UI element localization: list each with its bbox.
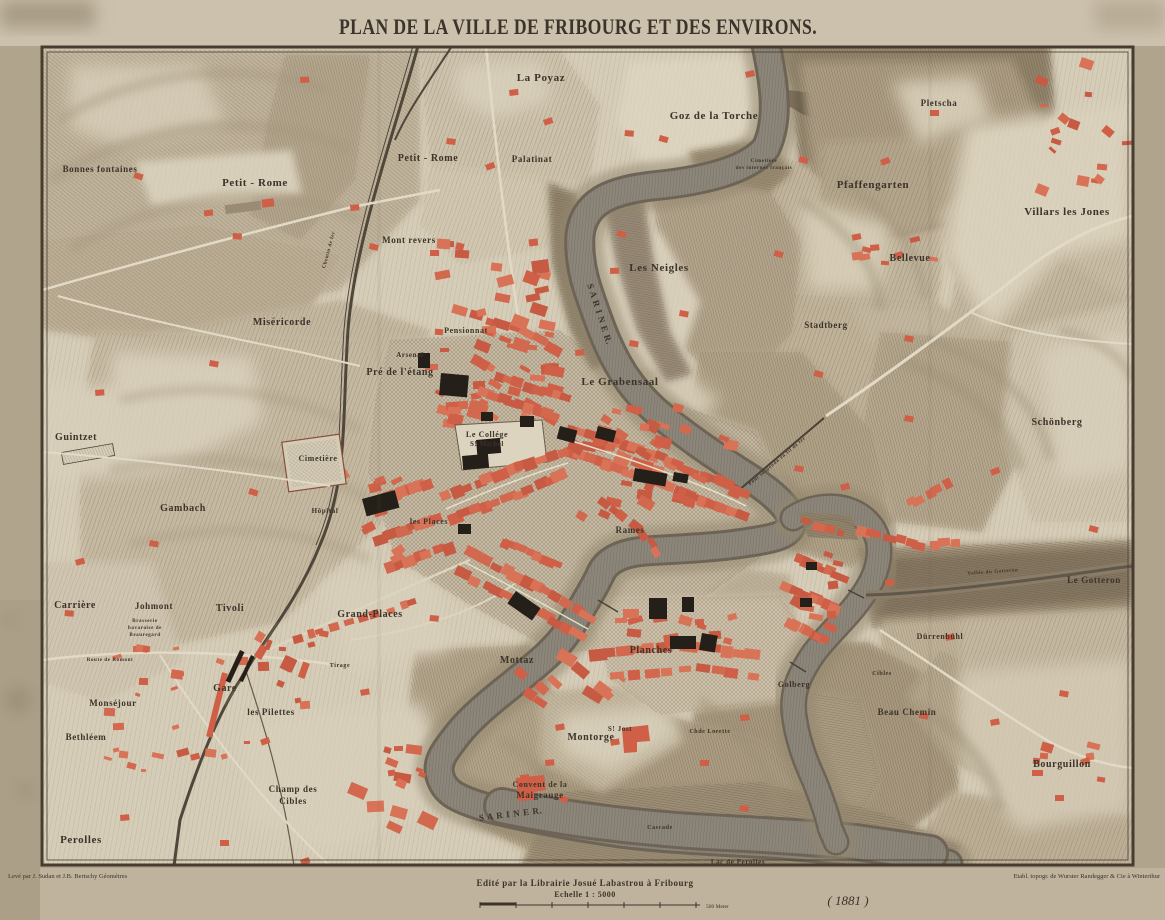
svg-text:Cibles: Cibles — [279, 796, 307, 806]
svg-text:Cascade: Cascade — [647, 825, 673, 831]
svg-text:Route de Romont: Route de Romont — [87, 658, 134, 663]
svg-text:Petit - Rome: Petit - Rome — [222, 177, 288, 189]
svg-text:Gambach: Gambach — [160, 503, 206, 514]
svg-text:Golberg: Golberg — [778, 680, 810, 689]
svg-text:Villars les Jones: Villars les Jones — [1024, 206, 1110, 218]
svg-text:Perolles: Perolles — [60, 834, 102, 846]
svg-text:Stadtberg: Stadtberg — [804, 320, 847, 330]
svg-text:Beauregard: Beauregard — [129, 633, 160, 638]
svg-text:Hôpital: Hôpital — [312, 507, 339, 515]
svg-text:Maigrauge: Maigrauge — [516, 790, 563, 800]
svg-text:Mont revers: Mont revers — [382, 235, 436, 245]
svg-text:Beau Chemin: Beau Chemin — [878, 707, 937, 717]
svg-text:PLAN DE LA VILLE DE FRIBOURG E: PLAN DE LA VILLE DE FRIBOURG ET DES ENVI… — [339, 14, 817, 39]
svg-text:Bellevue: Bellevue — [890, 253, 931, 264]
svg-text:Cibles: Cibles — [872, 671, 892, 677]
svg-text:Schönberg: Schönberg — [1032, 417, 1083, 428]
svg-text:Champ des: Champ des — [269, 784, 318, 794]
svg-text:Chde Lorette: Chde Lorette — [689, 729, 730, 735]
svg-text:Pletscha: Pletscha — [921, 98, 958, 108]
svg-text:Levé par J. Sudan et J.B. Bert: Levé par J. Sudan et J.B. Bertschy Géomè… — [8, 873, 128, 880]
svg-text:Pfaffengarten: Pfaffengarten — [837, 179, 910, 191]
svg-text:Miséricorde: Miséricorde — [253, 317, 311, 328]
svg-text:( 1881 ): ( 1881 ) — [827, 893, 868, 908]
svg-text:Montorge: Montorge — [567, 732, 614, 743]
svg-text:Tirage: Tirage — [330, 663, 351, 669]
svg-text:S! Jost: S! Jost — [608, 725, 632, 733]
svg-text:Pensionnat: Pensionnat — [444, 326, 488, 335]
svg-text:Monséjour: Monséjour — [89, 698, 136, 708]
svg-text:bavaroise de: bavaroise de — [128, 626, 162, 631]
svg-text:Palatinat: Palatinat — [512, 154, 552, 164]
svg-text:Gare: Gare — [213, 683, 237, 694]
svg-text:Les Neigles: Les Neigles — [629, 262, 689, 274]
svg-text:Bourguillon: Bourguillon — [1033, 759, 1091, 770]
svg-text:Arsenal: Arsenal — [396, 351, 424, 359]
svg-text:Etabl. topogr. de Wurster Rand: Etabl. topogr. de Wurster Randegger & Ci… — [1013, 873, 1160, 880]
svg-text:Echelle 1 : 5000: Echelle 1 : 5000 — [554, 890, 616, 899]
svg-text:S! Michel: S! Michel — [470, 440, 504, 448]
svg-text:Planches: Planches — [630, 645, 673, 656]
svg-text:Petit - Rome: Petit - Rome — [398, 153, 459, 164]
svg-text:La Poyaz: La Poyaz — [517, 72, 566, 84]
svg-text:Johmont: Johmont — [135, 601, 173, 611]
svg-text:500 Meter: 500 Meter — [706, 904, 729, 910]
svg-text:Pré de l'étang: Pré de l'étang — [366, 367, 433, 378]
svg-text:Le Gotteron: Le Gotteron — [1067, 575, 1121, 585]
svg-text:Bethléem: Bethléem — [66, 732, 107, 742]
svg-text:des internés français: des internés français — [736, 166, 792, 171]
svg-text:Carrière: Carrière — [54, 600, 96, 611]
svg-text:Le Collége: Le Collége — [466, 430, 508, 439]
svg-text:Tivoli: Tivoli — [216, 603, 244, 614]
svg-text:Convent de la: Convent de la — [513, 780, 568, 789]
svg-text:Rames: Rames — [616, 525, 645, 535]
svg-text:Cimetière: Cimetière — [298, 454, 337, 463]
svg-text:Bonnes fontaines: Bonnes fontaines — [63, 164, 138, 174]
svg-text:Cimetière: Cimetière — [751, 159, 778, 164]
svg-text:les Places: les Places — [410, 517, 448, 526]
svg-text:Edité par la Librairie Josué L: Edité par la Librairie Josué Labastrou à… — [477, 878, 694, 888]
svg-text:les Pilettes: les Pilettes — [247, 707, 294, 717]
svg-text:Brasserie: Brasserie — [132, 619, 158, 624]
svg-text:Mottaz: Mottaz — [500, 655, 534, 666]
svg-text:Dürrenbühl: Dürrenbühl — [917, 632, 964, 641]
svg-text:Goz de la Torche: Goz de la Torche — [670, 110, 759, 122]
svg-text:Guintzet: Guintzet — [55, 432, 97, 443]
svg-text:Grand-Places: Grand-Places — [337, 609, 403, 620]
svg-text:Le Grabensaal: Le Grabensaal — [581, 376, 658, 388]
